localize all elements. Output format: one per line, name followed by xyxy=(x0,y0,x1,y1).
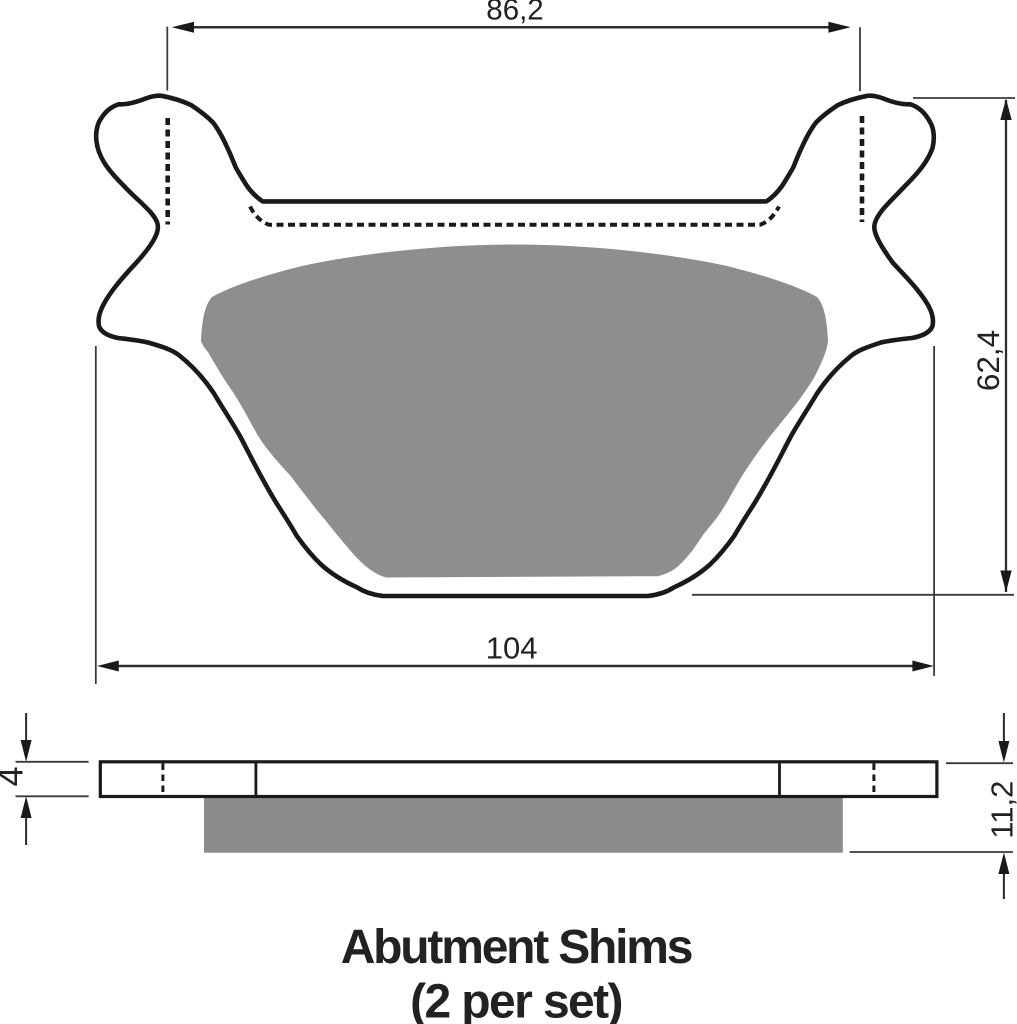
svg-text:86,2: 86,2 xyxy=(486,0,543,27)
svg-text:Abutment Shims: Abutment Shims xyxy=(341,921,692,974)
svg-text:11,2: 11,2 xyxy=(985,781,1017,839)
svg-text:62,4: 62,4 xyxy=(970,330,1006,391)
svg-text:(2 per set): (2 per set) xyxy=(410,976,622,1024)
svg-text:4: 4 xyxy=(0,766,31,786)
svg-text:104: 104 xyxy=(486,631,538,666)
